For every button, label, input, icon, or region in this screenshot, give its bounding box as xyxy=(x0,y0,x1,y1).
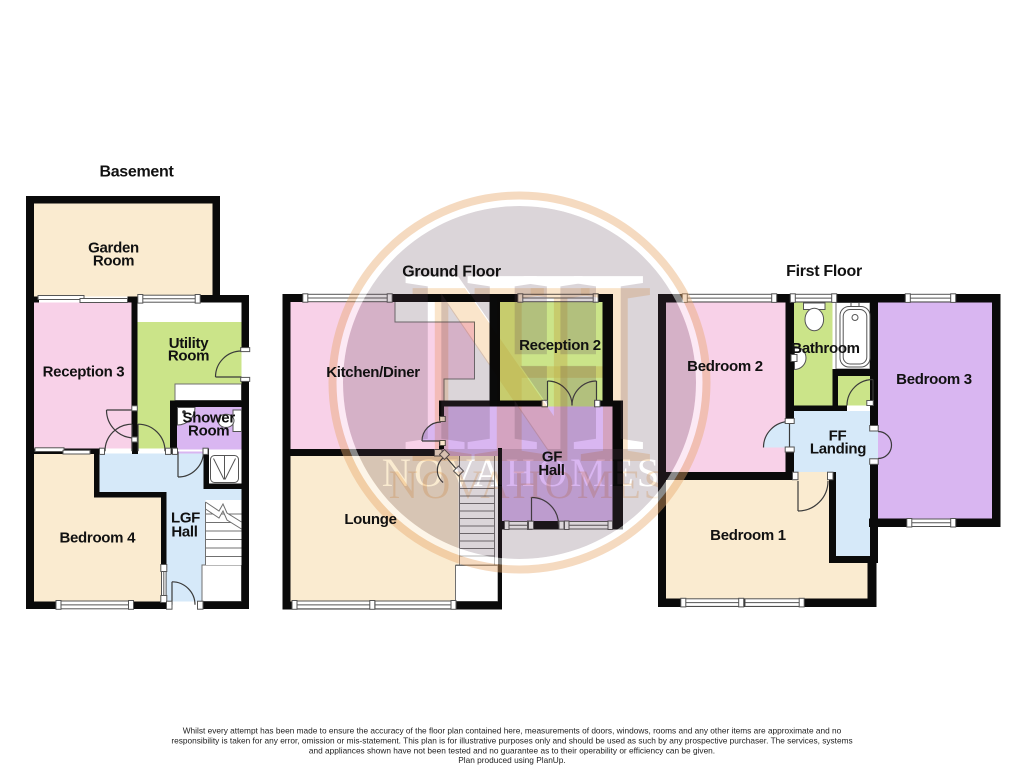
svg-text:Lounge: Lounge xyxy=(344,511,396,528)
svg-text:Bedroom 2: Bedroom 2 xyxy=(687,358,763,375)
svg-text:and appliances shown have not: and appliances shown have not been teste… xyxy=(309,746,715,756)
svg-text:Bedroom 3: Bedroom 3 xyxy=(896,371,972,388)
svg-text:Room: Room xyxy=(93,252,134,269)
svg-text:Landing: Landing xyxy=(810,441,866,458)
svg-text:Bedroom 4: Bedroom 4 xyxy=(59,530,136,547)
svg-text:Whilst every attempt has been: Whilst every attempt has been made to en… xyxy=(183,726,842,736)
svg-text:First Floor: First Floor xyxy=(786,263,862,280)
svg-text:Bedroom 1: Bedroom 1 xyxy=(710,527,786,544)
svg-text:Plan produced using PlanUp.: Plan produced using PlanUp. xyxy=(458,755,565,765)
svg-text:Room: Room xyxy=(168,348,209,365)
svg-text:Room: Room xyxy=(188,422,229,439)
svg-text:Reception 3: Reception 3 xyxy=(43,363,125,380)
svg-text:Kitchen/Diner: Kitchen/Diner xyxy=(326,364,420,381)
svg-text:Hall: Hall xyxy=(538,462,564,479)
svg-text:Reception 2: Reception 2 xyxy=(519,337,601,354)
svg-text:Bathroom: Bathroom xyxy=(791,340,859,357)
svg-text:Hall: Hall xyxy=(171,524,197,541)
svg-text:responsibility is taken for an: responsibility is taken for any error, o… xyxy=(171,736,852,746)
svg-text:Basement: Basement xyxy=(99,163,174,180)
svg-text:Ground Floor: Ground Floor xyxy=(402,264,501,281)
